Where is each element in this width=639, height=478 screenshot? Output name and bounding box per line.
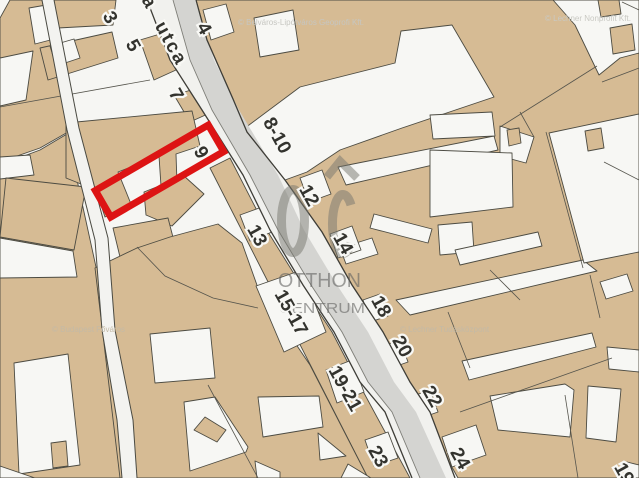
svg-text:© Budapest Főváros: © Budapest Főváros: [52, 325, 125, 334]
svg-text:© Lechner Tudásközpont: © Lechner Tudásközpont: [400, 325, 490, 334]
svg-text:© Belváros-Lipótváros Geoprofi: © Belváros-Lipótváros Geoprofi Kft.: [238, 18, 364, 27]
svg-text:© Lechner Nonprofit Kft.: © Lechner Nonprofit Kft.: [545, 14, 631, 23]
